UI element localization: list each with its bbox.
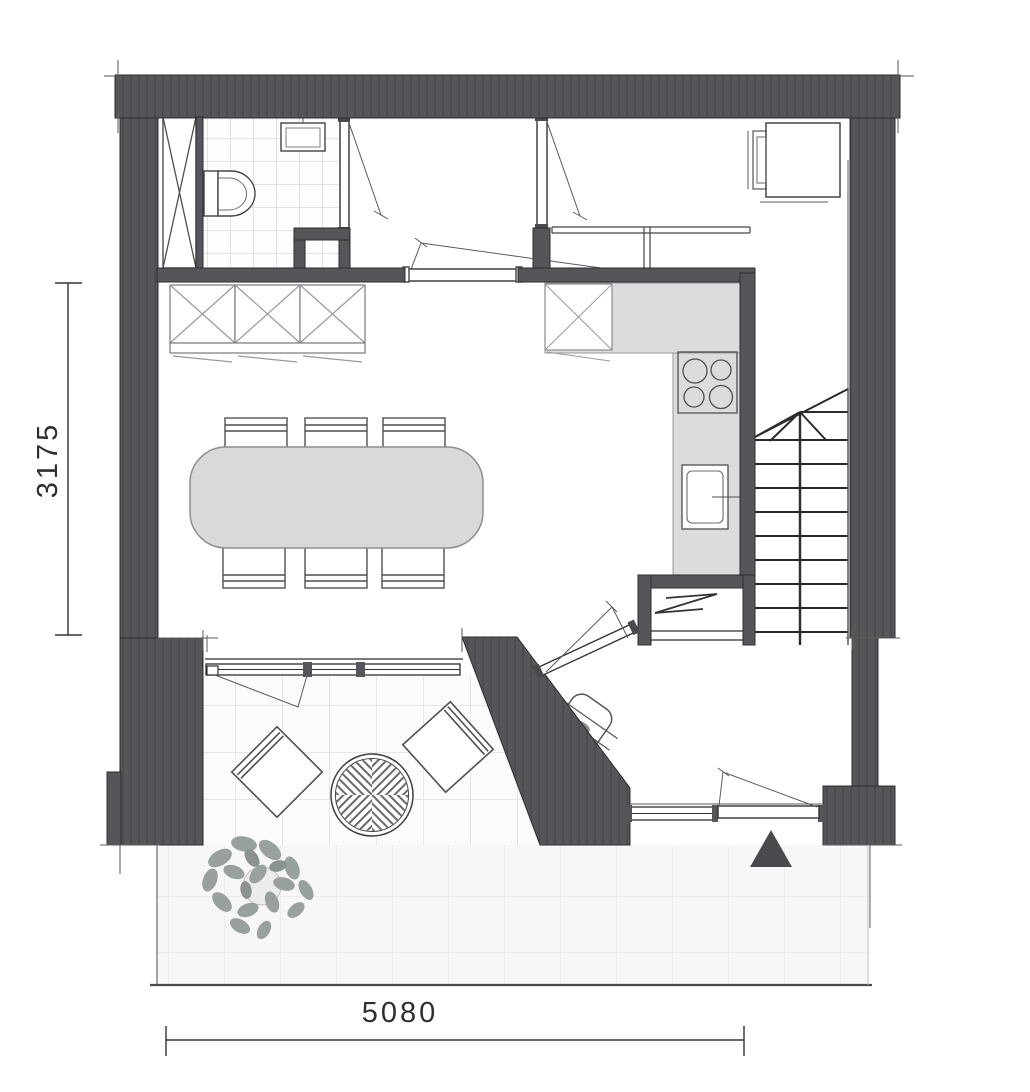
wall-left-notch: [107, 772, 121, 845]
wall-exterior-left: [120, 118, 158, 638]
entry-side-door: [718, 768, 819, 818]
kitchen-shelf-band: [552, 227, 750, 270]
wall-exterior-top: [115, 75, 900, 118]
hall-doors: [403, 115, 630, 282]
dimension-label-horizontal: 5080: [362, 997, 439, 1029]
wall-exterior-left-lower: [120, 638, 203, 845]
bathroom-door: [338, 116, 388, 233]
wall-hall-left: [157, 268, 405, 282]
wall-radiator-right: [743, 575, 755, 645]
wall-kitchen-stair: [740, 273, 755, 588]
utility-door: [535, 115, 587, 230]
dining-set: [190, 418, 483, 588]
closet-front: [170, 343, 365, 353]
staircase: [753, 388, 848, 645]
wardrobe-closets: [170, 285, 365, 362]
dining-table: [190, 447, 483, 548]
wall-door-block: [533, 228, 550, 268]
wall-corner-bottom-right: [823, 786, 895, 845]
floor-plan-page: 3175 5080: [0, 0, 1030, 1092]
radiator: [651, 594, 748, 640]
wall-duct-left: [294, 240, 305, 268]
wall-exterior-right: [850, 118, 895, 638]
wall-exterior-right-lower: [852, 638, 878, 786]
entrance-door: [532, 601, 639, 680]
wall-shaft: [196, 117, 203, 268]
wall-hall-right: [518, 268, 755, 282]
toilet-icon: [204, 171, 255, 216]
round-garden-table-icon: [331, 754, 413, 836]
wall-radiator-top: [638, 575, 755, 588]
window-mullion: [356, 662, 365, 677]
washing-machine-icon: [748, 123, 840, 202]
wall-duct-right: [339, 240, 350, 268]
dimension-label-vertical: 3175: [32, 422, 64, 499]
dimension-vertical: 3175: [32, 283, 82, 635]
wall-duct-top: [294, 228, 350, 240]
dimension-horizontal: 5080: [166, 997, 744, 1056]
floor-plan-canvas: 3175 5080: [0, 0, 1030, 1092]
wall-radiator-left: [638, 575, 651, 645]
radiator-zigzag-icon: [655, 594, 717, 613]
